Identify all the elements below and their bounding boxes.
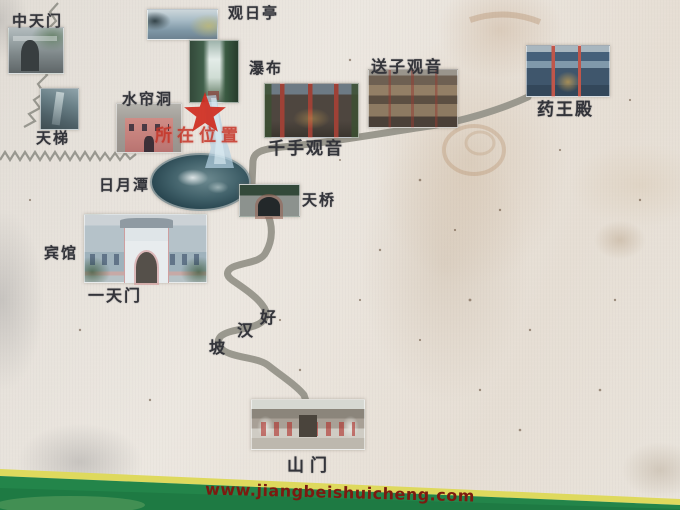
map-board-photo: 中天门 天梯 观日亭 瀑布 水帘洞 千手观音 送子观音 药王殿 日月潭 天桥 宾… (0, 0, 680, 510)
bottom-banner (0, 0, 680, 510)
